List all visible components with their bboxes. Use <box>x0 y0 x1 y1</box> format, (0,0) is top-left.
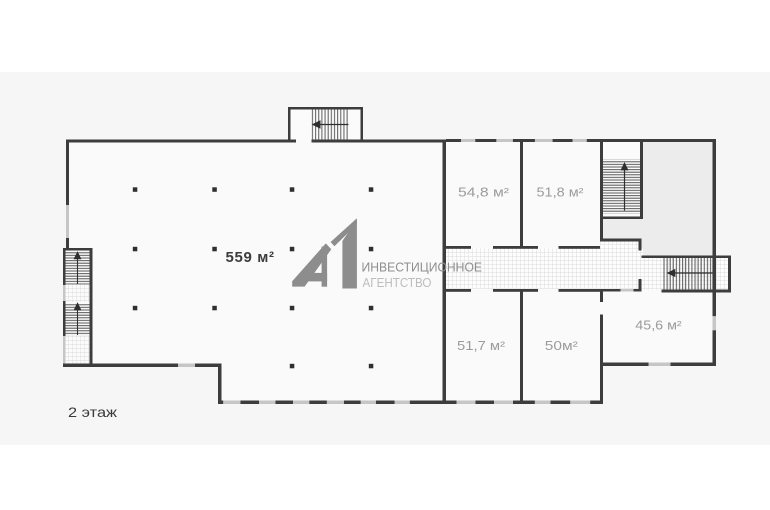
svg-text:51,8 м²: 51,8 м² <box>537 186 584 200</box>
svg-text:ИНВЕСТИЦИОННОЕ: ИНВЕСТИЦИОННОЕ <box>362 260 483 275</box>
svg-text:АГЕНТСТВО: АГЕНТСТВО <box>363 275 432 290</box>
svg-text:50м²: 50м² <box>545 339 578 353</box>
svg-text:45,6 м²: 45,6 м² <box>635 319 681 333</box>
svg-text:54,8 м²: 54,8 м² <box>458 186 509 200</box>
svg-text:2 этаж: 2 этаж <box>68 404 118 420</box>
svg-text:559 м²: 559 м² <box>226 249 275 266</box>
svg-text:51,7 м²: 51,7 м² <box>457 339 505 353</box>
